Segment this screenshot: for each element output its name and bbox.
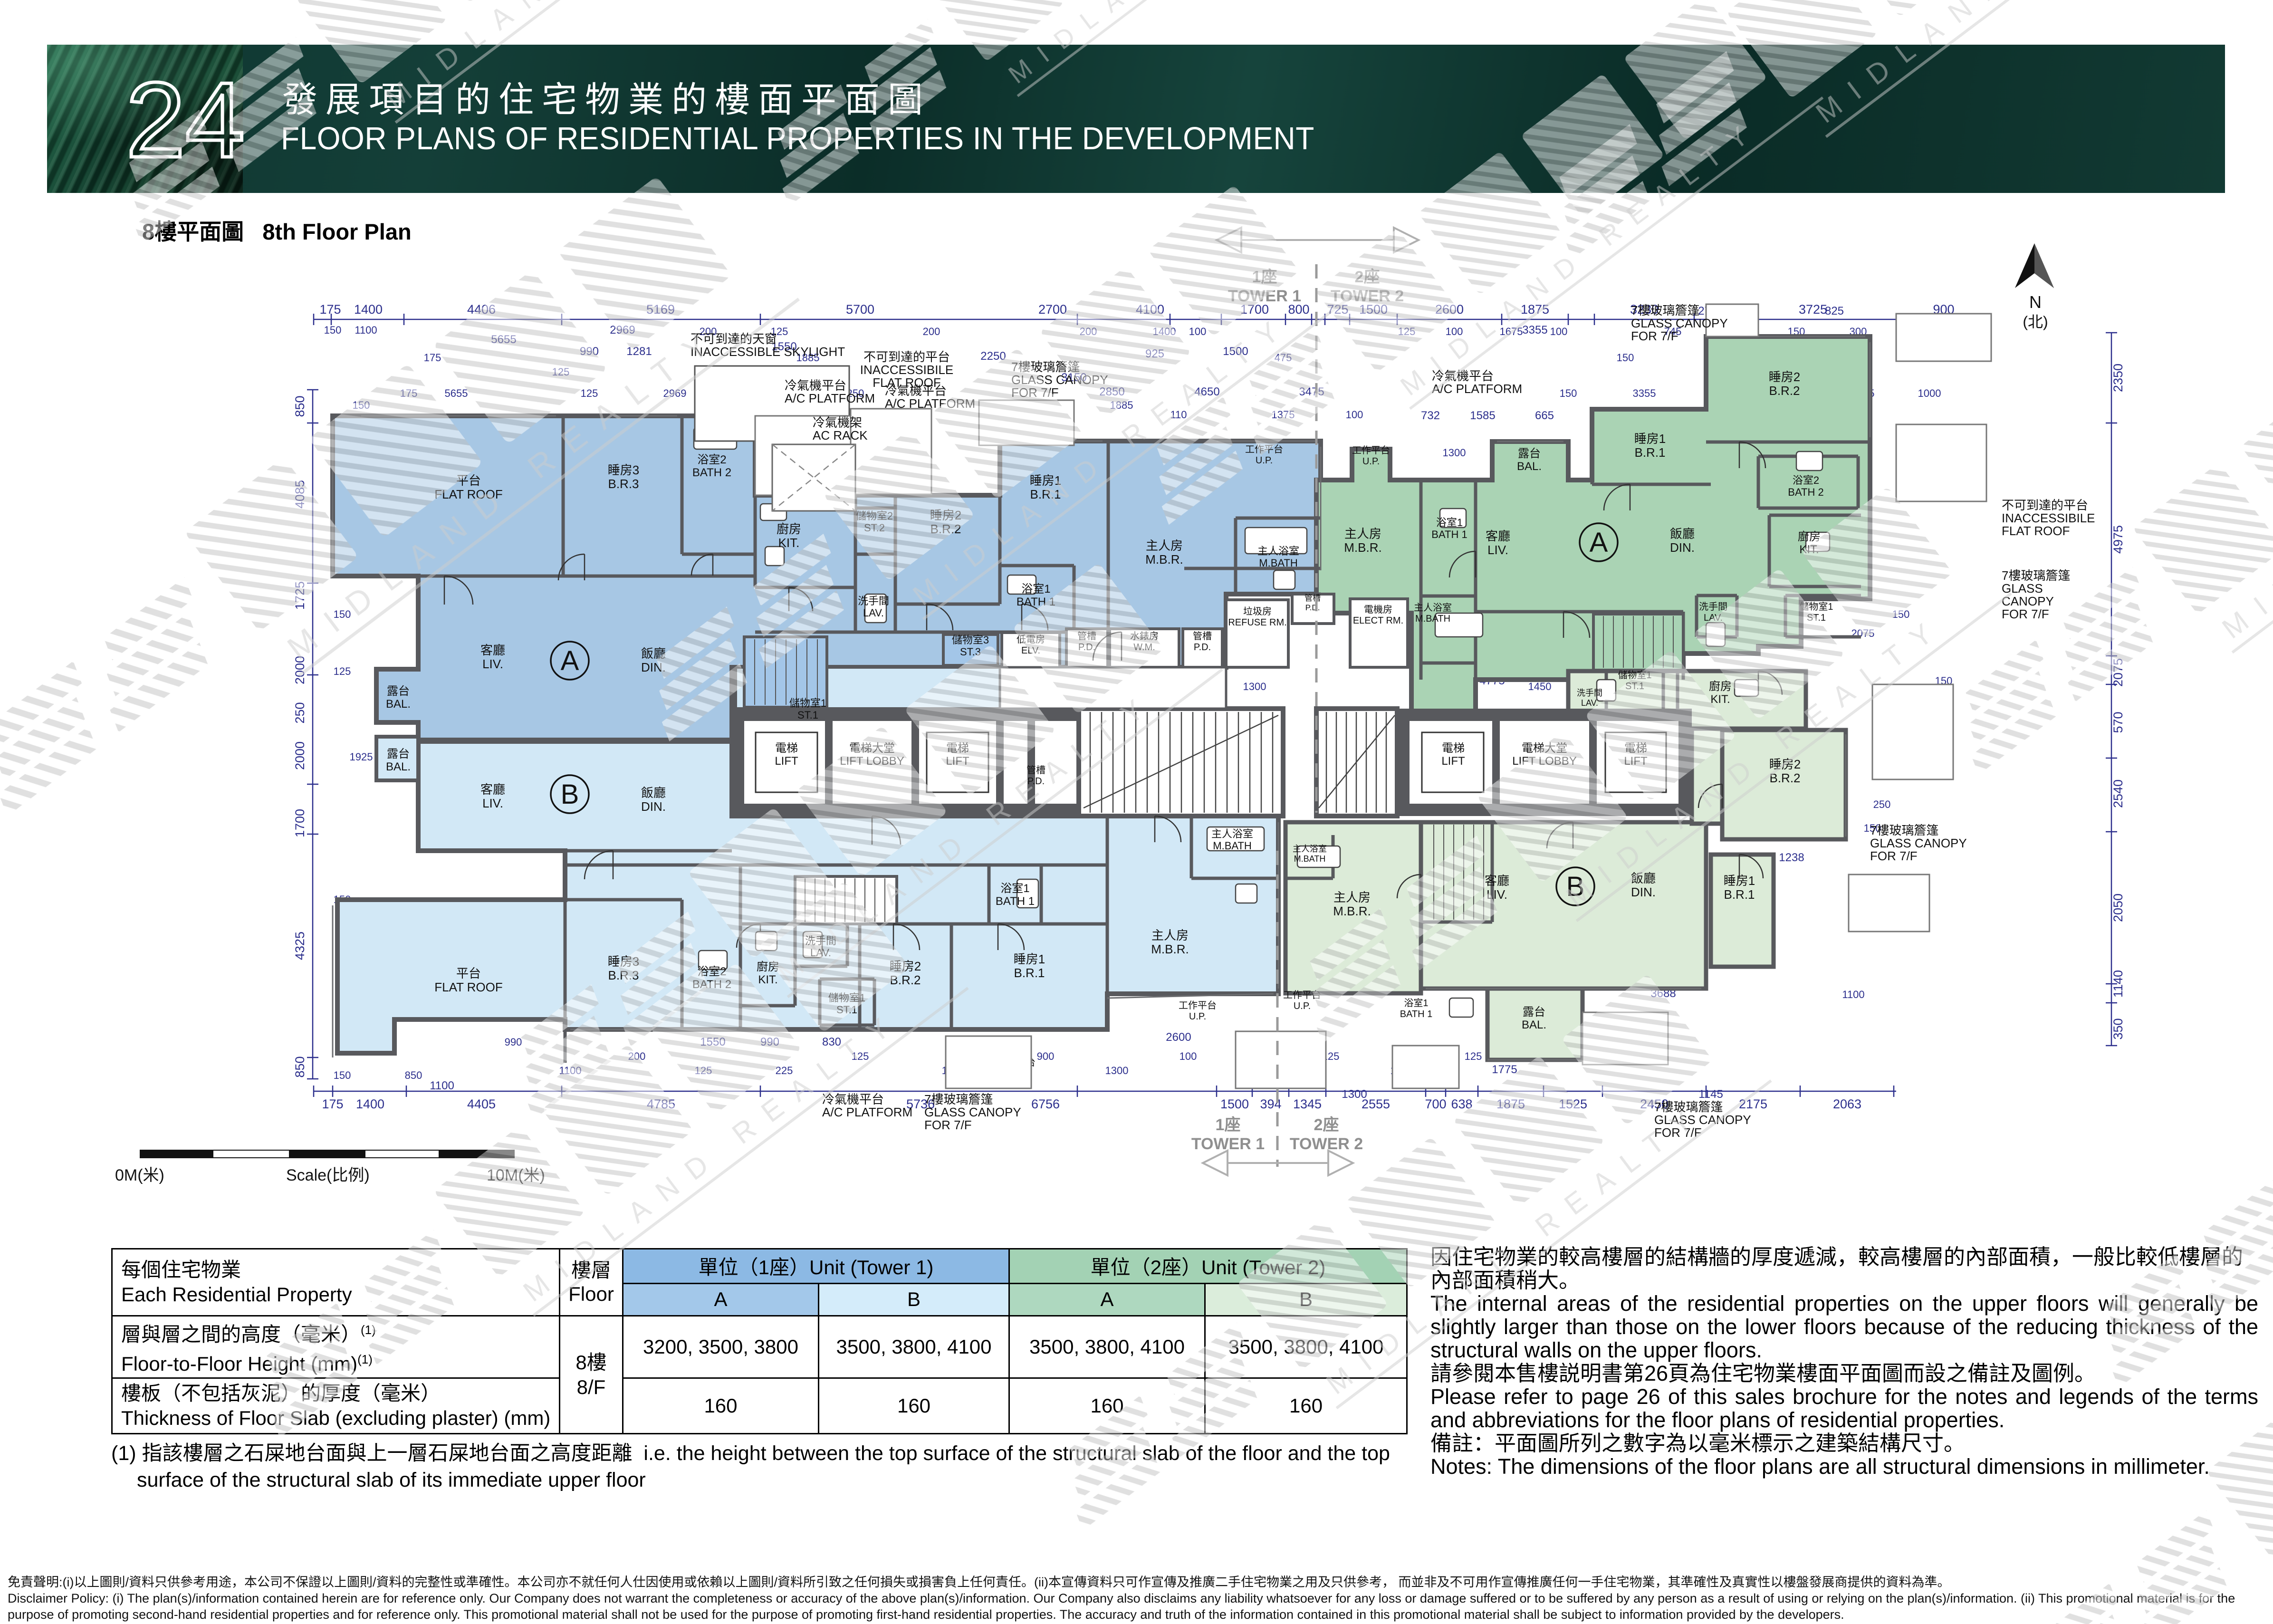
svg-text:洗手間: 洗手間 bbox=[1699, 601, 1727, 612]
svg-text:1100: 1100 bbox=[355, 324, 377, 336]
svg-text:2540: 2540 bbox=[2111, 779, 2125, 808]
svg-text:FLAT ROOF: FLAT ROOF bbox=[434, 980, 503, 994]
svg-text:1550: 1550 bbox=[700, 1036, 725, 1048]
svg-text:150: 150 bbox=[324, 324, 342, 336]
svg-text:2075: 2075 bbox=[2111, 658, 2125, 687]
svg-text:B.R.1: B.R.1 bbox=[1634, 445, 1665, 460]
svg-text:150: 150 bbox=[353, 399, 370, 411]
svg-text:2050: 2050 bbox=[2111, 894, 2125, 922]
svg-text:7樓玻璃簷篷: 7樓玻璃簷篷 bbox=[1870, 823, 1938, 837]
svg-text:175: 175 bbox=[424, 352, 441, 364]
svg-text:電梯: 電梯 bbox=[1442, 742, 1465, 755]
svg-text:儲物室2: 儲物室2 bbox=[856, 510, 893, 522]
svg-text:A/C PLATFORM: A/C PLATFORM bbox=[885, 396, 975, 411]
svg-text:平台: 平台 bbox=[456, 473, 481, 488]
svg-text:水錶房: 水錶房 bbox=[1130, 631, 1159, 642]
svg-text:INACCESSIBILE: INACCESSIBILE bbox=[2002, 511, 2095, 525]
svg-text:DIN.: DIN. bbox=[641, 660, 666, 674]
svg-text:3725: 3725 bbox=[1799, 302, 1827, 317]
svg-text:BATH 2: BATH 2 bbox=[692, 466, 731, 479]
svg-text:7樓玻璃簷篷: 7樓玻璃簷篷 bbox=[2002, 568, 2070, 583]
svg-text:LIV.: LIV. bbox=[482, 657, 503, 671]
svg-text:5655: 5655 bbox=[491, 333, 516, 346]
svg-text:睡房2: 睡房2 bbox=[890, 959, 921, 973]
svg-text:不可到達的平台: 不可到達的平台 bbox=[863, 350, 950, 364]
svg-text:B.R.3: B.R.3 bbox=[608, 968, 639, 982]
svg-text:LIV.: LIV. bbox=[1487, 887, 1507, 902]
svg-text:100: 100 bbox=[1550, 326, 1568, 337]
svg-text:KIT.: KIT. bbox=[758, 973, 777, 986]
svg-text:1875: 1875 bbox=[1496, 1097, 1525, 1111]
svg-text:TOWER 1: TOWER 1 bbox=[1228, 287, 1301, 305]
svg-text:TOWER 2: TOWER 2 bbox=[1290, 1135, 1363, 1153]
svg-text:ELV.: ELV. bbox=[1021, 645, 1040, 656]
svg-text:LAV.: LAV. bbox=[810, 947, 831, 959]
svg-text:1300: 1300 bbox=[1342, 1088, 1367, 1101]
svg-text:睡房3: 睡房3 bbox=[608, 954, 639, 969]
svg-text:2000: 2000 bbox=[293, 656, 307, 684]
svg-text:LIFT: LIFT bbox=[1441, 755, 1465, 768]
svg-text:露台: 露台 bbox=[1518, 447, 1541, 460]
svg-text:250: 250 bbox=[1873, 798, 1891, 810]
svg-text:4100: 4100 bbox=[1136, 302, 1164, 317]
svg-text:1675: 1675 bbox=[1500, 326, 1523, 337]
svg-text:850: 850 bbox=[405, 1069, 422, 1081]
svg-text:浴室2: 浴室2 bbox=[1793, 474, 1819, 486]
svg-text:850: 850 bbox=[293, 1056, 307, 1077]
svg-text:P.D.: P.D. bbox=[1027, 776, 1045, 787]
svg-text:4650: 4650 bbox=[1194, 385, 1219, 398]
svg-text:350: 350 bbox=[2111, 1018, 2125, 1039]
svg-text:1140: 1140 bbox=[2111, 970, 2125, 998]
svg-text:1281: 1281 bbox=[626, 345, 652, 358]
svg-text:2座: 2座 bbox=[1314, 1116, 1339, 1134]
svg-text:3475: 3475 bbox=[1299, 385, 1324, 398]
svg-text:主人浴室: 主人浴室 bbox=[1211, 828, 1253, 840]
svg-text:M.BATH: M.BATH bbox=[1259, 557, 1297, 569]
svg-text:200: 200 bbox=[1080, 326, 1097, 337]
svg-text:工作平台: 工作平台 bbox=[1245, 444, 1283, 455]
svg-text:ST.1: ST.1 bbox=[797, 709, 818, 721]
svg-text:電梯大堂: 電梯大堂 bbox=[1522, 742, 1567, 755]
svg-text:1375: 1375 bbox=[1272, 409, 1295, 421]
svg-text:ST.3: ST.3 bbox=[960, 646, 981, 658]
svg-text:FLAT ROOF: FLAT ROOF bbox=[434, 487, 503, 501]
svg-text:垃圾房: 垃圾房 bbox=[1243, 606, 1272, 617]
svg-text:1400: 1400 bbox=[1153, 326, 1176, 337]
svg-text:125: 125 bbox=[552, 366, 570, 378]
svg-text:150: 150 bbox=[1560, 387, 1577, 399]
svg-text:U.P.: U.P. bbox=[1189, 1011, 1206, 1022]
svg-text:FOR 7/F: FOR 7/F bbox=[1631, 329, 1678, 343]
svg-text:1400: 1400 bbox=[354, 302, 383, 317]
svg-text:冷氣機平台: 冷氣機平台 bbox=[885, 384, 947, 398]
svg-text:FLAT ROOF: FLAT ROOF bbox=[2002, 524, 2070, 538]
svg-text:電梯: 電梯 bbox=[1624, 742, 1647, 755]
svg-text:電梯: 電梯 bbox=[946, 742, 969, 755]
svg-text:1100: 1100 bbox=[559, 1065, 581, 1076]
svg-text:冷氣機平台: 冷氣機平台 bbox=[785, 378, 846, 393]
svg-text:150: 150 bbox=[334, 1069, 351, 1081]
svg-text:1500: 1500 bbox=[1223, 345, 1248, 358]
svg-text:露台: 露台 bbox=[1523, 1006, 1545, 1019]
svg-text:客廳: 客廳 bbox=[1486, 529, 1510, 543]
svg-text:DIN.: DIN. bbox=[1670, 540, 1695, 555]
svg-text:830: 830 bbox=[822, 1036, 841, 1048]
svg-text:GLASS CANOPY: GLASS CANOPY bbox=[1654, 1113, 1751, 1127]
svg-text:2600: 2600 bbox=[1435, 302, 1464, 317]
svg-text:2850: 2850 bbox=[1099, 385, 1124, 398]
svg-text:1300: 1300 bbox=[1105, 1065, 1129, 1076]
svg-text:睡房2: 睡房2 bbox=[1769, 370, 1800, 384]
svg-text:洗手間: 洗手間 bbox=[1577, 688, 1602, 698]
svg-text:FOR 7/F: FOR 7/F bbox=[1870, 849, 1918, 863]
svg-text:客廳: 客廳 bbox=[480, 782, 505, 797]
svg-text:主人房: 主人房 bbox=[1333, 890, 1371, 904]
svg-text:浴室1: 浴室1 bbox=[1000, 882, 1029, 895]
svg-text:M.BATH: M.BATH bbox=[1415, 614, 1450, 624]
svg-text:1875: 1875 bbox=[1521, 302, 1549, 317]
svg-text:925: 925 bbox=[1145, 347, 1164, 360]
svg-text:125: 125 bbox=[1465, 1050, 1482, 1062]
svg-text:浴室1: 浴室1 bbox=[1021, 583, 1050, 596]
svg-text:KIT.: KIT. bbox=[1799, 543, 1819, 556]
svg-text:7樓玻璃簷篷: 7樓玻璃簷篷 bbox=[1011, 360, 1080, 374]
svg-text:飯廳: 飯廳 bbox=[1631, 871, 1656, 885]
svg-text:2969: 2969 bbox=[663, 387, 687, 399]
svg-text:飯廳: 飯廳 bbox=[641, 786, 666, 800]
svg-text:125: 125 bbox=[581, 387, 598, 399]
svg-text:飯廳: 飯廳 bbox=[1670, 527, 1695, 541]
svg-text:M.B.R.: M.B.R. bbox=[1145, 552, 1183, 567]
svg-text:管槽: 管槽 bbox=[1193, 631, 1212, 642]
svg-text:主人浴室: 主人浴室 bbox=[1293, 844, 1327, 854]
svg-text:廚房: 廚房 bbox=[757, 961, 779, 973]
svg-text:飯廳: 飯廳 bbox=[641, 646, 666, 661]
svg-text:睡房2: 睡房2 bbox=[930, 508, 961, 522]
svg-text:LAV.: LAV. bbox=[863, 607, 884, 619]
svg-text:3355: 3355 bbox=[1633, 387, 1656, 399]
svg-text:1000: 1000 bbox=[1918, 387, 1941, 399]
svg-text:LIFT LOBBY: LIFT LOBBY bbox=[1512, 755, 1577, 768]
svg-text:儲物室1: 儲物室1 bbox=[789, 697, 826, 709]
svg-text:LIFT: LIFT bbox=[1624, 755, 1648, 768]
svg-text:ST.1: ST.1 bbox=[1625, 681, 1644, 692]
svg-text:平台: 平台 bbox=[456, 966, 481, 980]
svg-text:5700: 5700 bbox=[846, 302, 874, 317]
svg-text:客廳: 客廳 bbox=[480, 643, 505, 657]
svg-text:1500: 1500 bbox=[1220, 1097, 1249, 1111]
svg-text:990: 990 bbox=[580, 345, 599, 358]
svg-text:2250: 2250 bbox=[980, 350, 1006, 363]
svg-text:冷氣機平台: 冷氣機平台 bbox=[1432, 369, 1494, 383]
svg-text:GLASS CANOPY: GLASS CANOPY bbox=[1011, 373, 1108, 387]
svg-text:125: 125 bbox=[334, 665, 351, 677]
svg-text:GLASS: GLASS bbox=[2002, 581, 2043, 596]
svg-text:1450: 1450 bbox=[1528, 681, 1552, 692]
svg-text:B.R.1: B.R.1 bbox=[1030, 487, 1061, 501]
svg-text:N: N bbox=[2029, 292, 2042, 312]
svg-text:175: 175 bbox=[319, 302, 341, 317]
svg-text:廚房: 廚房 bbox=[1798, 530, 1821, 543]
svg-text:M.B.R.: M.B.R. bbox=[1344, 540, 1381, 555]
svg-text:B.R.1: B.R.1 bbox=[1014, 966, 1045, 980]
svg-text:A/C PLATFORM: A/C PLATFORM bbox=[785, 391, 875, 405]
svg-text:LIFT: LIFT bbox=[775, 755, 798, 768]
svg-text:浴室1: 浴室1 bbox=[1436, 517, 1463, 529]
svg-text:125: 125 bbox=[695, 1065, 712, 1076]
svg-text:管槽: 管槽 bbox=[1026, 765, 1045, 776]
svg-text:B.R.2: B.R.2 bbox=[1769, 771, 1800, 785]
svg-text:洗手間: 洗手間 bbox=[805, 935, 836, 947]
svg-text:LAV.: LAV. bbox=[1704, 613, 1723, 623]
svg-text:ELECT RM.: ELECT RM. bbox=[1353, 615, 1403, 626]
svg-text:GLASS CANOPY: GLASS CANOPY bbox=[924, 1105, 1021, 1119]
svg-text:100: 100 bbox=[1180, 1050, 1197, 1062]
svg-text:1700: 1700 bbox=[293, 809, 307, 837]
svg-text:U.P.: U.P. bbox=[1362, 456, 1380, 467]
svg-text:5169: 5169 bbox=[646, 302, 675, 317]
svg-text:B: B bbox=[561, 779, 579, 810]
svg-text:B.R.2: B.R.2 bbox=[890, 973, 921, 987]
svg-text:900: 900 bbox=[1037, 1050, 1055, 1062]
svg-text:1300: 1300 bbox=[1443, 447, 1466, 459]
svg-text:M.BATH: M.BATH bbox=[1213, 840, 1251, 852]
svg-text:4085: 4085 bbox=[293, 480, 307, 509]
svg-text:P.D.: P.D. bbox=[1305, 603, 1320, 612]
svg-text:100: 100 bbox=[1446, 326, 1463, 337]
svg-text:4405: 4405 bbox=[467, 1097, 496, 1111]
svg-text:LIFT LOBBY: LIFT LOBBY bbox=[840, 755, 904, 768]
svg-text:(北): (北) bbox=[2023, 313, 2048, 330]
svg-text:4975: 4975 bbox=[2111, 525, 2125, 554]
svg-text:B.R.2: B.R.2 bbox=[930, 522, 961, 536]
svg-text:1345: 1345 bbox=[1293, 1097, 1322, 1111]
svg-text:DIN.: DIN. bbox=[1631, 885, 1656, 899]
svg-text:KIT.: KIT. bbox=[1710, 693, 1730, 706]
svg-text:475: 475 bbox=[1275, 352, 1292, 364]
svg-text:BAL.: BAL. bbox=[1522, 1019, 1546, 1031]
svg-text:BATH 1: BATH 1 bbox=[996, 895, 1035, 908]
svg-text:7樓玻璃簷篷: 7樓玻璃簷篷 bbox=[1654, 1100, 1723, 1114]
svg-text:廚房: 廚房 bbox=[777, 522, 801, 536]
svg-text:BATH 1: BATH 1 bbox=[1431, 529, 1467, 540]
svg-text:1座: 1座 bbox=[1252, 268, 1277, 286]
svg-text:825: 825 bbox=[1825, 305, 1844, 317]
svg-text:200: 200 bbox=[923, 326, 940, 337]
svg-text:U.P.: U.P. bbox=[1256, 455, 1273, 466]
svg-text:2350: 2350 bbox=[2111, 364, 2125, 392]
svg-text:不可到達的天窗: 不可到達的天窗 bbox=[691, 332, 777, 346]
svg-text:2175: 2175 bbox=[1739, 1097, 1767, 1111]
svg-text:BATH 1: BATH 1 bbox=[1017, 596, 1055, 608]
svg-text:732: 732 bbox=[1421, 409, 1440, 422]
svg-text:175: 175 bbox=[322, 1097, 343, 1111]
svg-text:主人房: 主人房 bbox=[1344, 527, 1381, 541]
svg-text:A: A bbox=[561, 645, 579, 676]
svg-text:冷氣機平台: 冷氣機平台 bbox=[822, 1092, 884, 1106]
svg-text:睡房1: 睡房1 bbox=[1724, 874, 1755, 888]
svg-text:1100: 1100 bbox=[430, 1079, 454, 1092]
svg-text:REFUSE RM.: REFUSE RM. bbox=[1228, 617, 1286, 628]
svg-text:FOR 7/F: FOR 7/F bbox=[1654, 1125, 1702, 1140]
svg-text:125: 125 bbox=[1398, 326, 1416, 337]
svg-text:P.D.: P.D. bbox=[1194, 642, 1211, 653]
svg-text:工作平台: 工作平台 bbox=[1352, 445, 1390, 456]
svg-text:M.B.R.: M.B.R. bbox=[1151, 942, 1189, 956]
svg-text:ST.1: ST.1 bbox=[836, 1004, 857, 1016]
svg-text:110: 110 bbox=[1170, 409, 1187, 421]
svg-text:BATH 2: BATH 2 bbox=[1788, 486, 1823, 498]
svg-text:150: 150 bbox=[1617, 352, 1634, 364]
svg-text:10M(米): 10M(米) bbox=[487, 1166, 545, 1184]
svg-text:主人浴室: 主人浴室 bbox=[1414, 602, 1452, 613]
svg-text:B.R.1: B.R.1 bbox=[1724, 887, 1755, 902]
svg-text:M.BATH: M.BATH bbox=[1294, 854, 1326, 864]
svg-text:露台: 露台 bbox=[387, 748, 410, 760]
svg-text:LIFT: LIFT bbox=[946, 755, 969, 768]
svg-text:P.D.: P.D. bbox=[1078, 642, 1095, 653]
svg-text:電梯: 電梯 bbox=[775, 742, 798, 755]
svg-text:DIN.: DIN. bbox=[641, 799, 666, 814]
svg-text:B.R.3: B.R.3 bbox=[608, 477, 639, 491]
svg-text:1925: 1925 bbox=[350, 751, 373, 763]
svg-text:M.B.R.: M.B.R. bbox=[1333, 904, 1371, 918]
svg-text:7樓玻璃簷篷: 7樓玻璃簷篷 bbox=[924, 1092, 993, 1106]
svg-text:電機房: 電機房 bbox=[1364, 604, 1392, 615]
svg-text:2000: 2000 bbox=[293, 741, 307, 770]
svg-text:管槽: 管槽 bbox=[1077, 631, 1096, 642]
svg-text:100: 100 bbox=[1189, 326, 1207, 337]
svg-text:低電房: 低電房 bbox=[1017, 634, 1045, 645]
svg-text:儲物室1: 儲物室1 bbox=[828, 992, 865, 1004]
svg-text:700: 700 bbox=[1425, 1097, 1446, 1111]
svg-text:BATH 1: BATH 1 bbox=[1400, 1009, 1433, 1019]
svg-text:不可到達的平台: 不可到達的平台 bbox=[2002, 498, 2088, 512]
svg-text:200: 200 bbox=[628, 1050, 646, 1062]
svg-text:儲物室1: 儲物室1 bbox=[1799, 601, 1833, 612]
svg-text:1525: 1525 bbox=[1559, 1097, 1587, 1111]
svg-text:2座: 2座 bbox=[1355, 268, 1380, 286]
svg-text:儲物室3: 儲物室3 bbox=[952, 634, 989, 646]
svg-text:BAL.: BAL. bbox=[386, 698, 411, 711]
svg-text:2600: 2600 bbox=[1166, 1031, 1191, 1044]
svg-text:管槽: 管槽 bbox=[1304, 594, 1321, 603]
svg-text:1145: 1145 bbox=[1698, 1088, 1723, 1101]
svg-text:2063: 2063 bbox=[1833, 1097, 1861, 1111]
svg-text:浴室1: 浴室1 bbox=[1404, 998, 1428, 1009]
svg-text:U.P.: U.P. bbox=[1294, 1001, 1311, 1011]
svg-text:ST.2: ST.2 bbox=[864, 522, 885, 534]
svg-text:175: 175 bbox=[400, 387, 418, 399]
svg-text:CANOPY: CANOPY bbox=[2002, 594, 2054, 608]
svg-text:浴室2: 浴室2 bbox=[697, 453, 726, 466]
svg-text:BAL.: BAL. bbox=[1517, 460, 1542, 473]
svg-text:LIV.: LIV. bbox=[1487, 543, 1508, 557]
svg-text:KIT.: KIT. bbox=[778, 536, 800, 550]
svg-text:LIV.: LIV. bbox=[482, 796, 503, 810]
svg-text:W.M.: W.M. bbox=[1133, 642, 1155, 653]
svg-text:BATH 2: BATH 2 bbox=[692, 978, 731, 991]
svg-text:主人房: 主人房 bbox=[1146, 538, 1183, 553]
svg-text:睡房1: 睡房1 bbox=[1014, 952, 1045, 966]
svg-text:570: 570 bbox=[2111, 711, 2125, 733]
svg-text:A/C PLATFORM: A/C PLATFORM bbox=[1432, 382, 1522, 396]
svg-text:4785: 4785 bbox=[647, 1097, 675, 1111]
svg-text:100: 100 bbox=[1346, 409, 1363, 421]
svg-text:B: B bbox=[1566, 871, 1585, 902]
svg-text:GLASS CANOPY: GLASS CANOPY bbox=[1631, 316, 1728, 330]
svg-text:1885: 1885 bbox=[1110, 399, 1133, 411]
svg-text:客廳: 客廳 bbox=[1485, 874, 1509, 888]
svg-text:225: 225 bbox=[776, 1065, 793, 1076]
svg-text:工作平台: 工作平台 bbox=[1283, 990, 1321, 1000]
svg-text:睡房1: 睡房1 bbox=[1030, 473, 1061, 488]
svg-text:6756: 6756 bbox=[1031, 1097, 1060, 1111]
svg-text:1100: 1100 bbox=[1842, 989, 1864, 1000]
svg-text:FOR 7/F: FOR 7/F bbox=[1011, 385, 1059, 400]
svg-text:1238: 1238 bbox=[1779, 851, 1804, 864]
svg-text:3355: 3355 bbox=[1522, 324, 1547, 336]
svg-text:ST.1: ST.1 bbox=[1807, 613, 1826, 623]
svg-text:665: 665 bbox=[1535, 409, 1554, 422]
svg-text:儲物室1: 儲物室1 bbox=[1618, 670, 1651, 681]
svg-text:工作平台: 工作平台 bbox=[1179, 1000, 1217, 1011]
svg-text:FOR 7/F: FOR 7/F bbox=[924, 1118, 972, 1132]
svg-text:2700: 2700 bbox=[1038, 302, 1067, 317]
svg-text:1座: 1座 bbox=[1216, 1116, 1241, 1134]
svg-text:電梯大堂: 電梯大堂 bbox=[849, 742, 895, 755]
svg-text:1725: 1725 bbox=[293, 581, 307, 610]
svg-text:1400: 1400 bbox=[356, 1097, 384, 1111]
svg-text:1775: 1775 bbox=[1492, 1063, 1517, 1076]
svg-text:INACCESSIBLE SKYLIGHT: INACCESSIBLE SKYLIGHT bbox=[691, 345, 845, 359]
svg-text:638: 638 bbox=[1451, 1097, 1472, 1111]
svg-text:Scale(比例): Scale(比例) bbox=[286, 1166, 370, 1184]
svg-text:1300: 1300 bbox=[1243, 681, 1266, 692]
svg-text:睡房2: 睡房2 bbox=[1769, 757, 1801, 771]
svg-text:150: 150 bbox=[334, 608, 351, 620]
svg-text:150: 150 bbox=[1892, 608, 1910, 620]
svg-text:250: 250 bbox=[293, 702, 307, 723]
svg-text:5655: 5655 bbox=[445, 387, 468, 399]
svg-text:睡房1: 睡房1 bbox=[1634, 432, 1666, 446]
svg-text:0M(米): 0M(米) bbox=[115, 1166, 164, 1184]
svg-text:850: 850 bbox=[293, 395, 307, 417]
svg-text:浴室2: 浴室2 bbox=[697, 965, 726, 978]
svg-text:990: 990 bbox=[505, 1036, 522, 1048]
svg-text:INACCESSIBILE: INACCESSIBILE bbox=[860, 363, 954, 377]
svg-text:LAV.: LAV. bbox=[1581, 698, 1598, 708]
svg-text:990: 990 bbox=[760, 1036, 779, 1048]
svg-text:2969: 2969 bbox=[610, 324, 635, 336]
svg-text:AC RACK: AC RACK bbox=[813, 428, 868, 442]
svg-text:4406: 4406 bbox=[467, 302, 496, 317]
svg-text:B.R.2: B.R.2 bbox=[1769, 384, 1800, 398]
svg-text:FOR 7/F: FOR 7/F bbox=[2002, 607, 2049, 621]
svg-text:7樓玻璃簷篷: 7樓玻璃簷篷 bbox=[1631, 303, 1699, 317]
svg-text:BAL.: BAL. bbox=[386, 760, 411, 773]
svg-text:洗手間: 洗手間 bbox=[858, 595, 889, 607]
svg-text:睡房3: 睡房3 bbox=[608, 463, 639, 477]
svg-text:1585: 1585 bbox=[1470, 409, 1495, 422]
svg-text:A: A bbox=[1590, 527, 1608, 558]
svg-text:廚房: 廚房 bbox=[1709, 680, 1732, 693]
svg-text:GLASS CANOPY: GLASS CANOPY bbox=[1870, 836, 1967, 850]
svg-text:4325: 4325 bbox=[293, 932, 307, 960]
svg-text:冷氣機架: 冷氣機架 bbox=[813, 415, 862, 430]
svg-text:主人房: 主人房 bbox=[1151, 928, 1189, 942]
